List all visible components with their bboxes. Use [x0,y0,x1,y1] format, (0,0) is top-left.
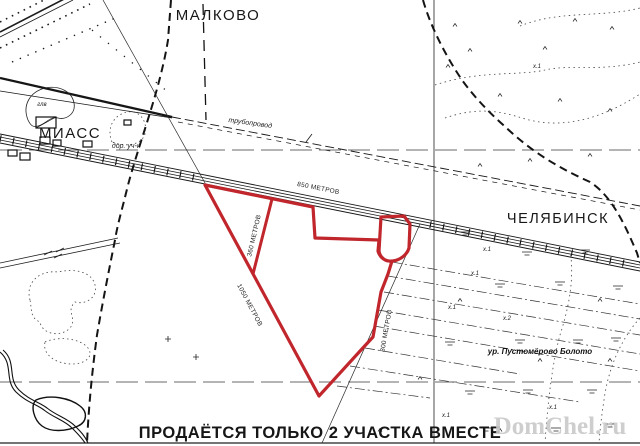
field-mark: х.1 [482,247,491,253]
field-mark: х.1 [548,405,557,411]
field-mark: х.1 [532,64,541,70]
field-mark: х.2 [502,316,512,322]
sale-notice: ПРОДАЁТСЯ ТОЛЬКО 2 УЧАСТКА ВМЕСТЕ [139,424,501,442]
railway-corridor [0,134,640,271]
field-track [0,238,120,268]
parcel-outlines [205,185,410,396]
town-label-chelyabinsk: ЧЕЛЯБИНСК [507,211,609,227]
tree-lined-road [0,0,168,92]
parcel-strip-outline [379,216,410,261]
field-mark: х.1 [441,413,450,419]
field-mark: х.1 [447,305,456,311]
cross-marks [165,336,199,360]
plot-edge-label-right: 800 МЕТРОВ [379,309,393,353]
field-mark: х.1 [470,271,479,277]
forest-mark-label: глв [37,102,46,108]
plot-edge-label-top: 850 МЕТРОВ [297,181,341,196]
topographic-map: трубопровод [0,0,640,446]
watermark: DomChel.ru [494,413,627,440]
survey-lines [103,0,420,443]
river [0,350,88,443]
plot-edge-label-left: 1050 МЕТРОВ [235,283,263,328]
swamp-label: ур. Пустомёрово Болото [487,347,593,356]
town-label-miass: МИАСС [39,125,101,142]
pipeline-label: трубопровод [228,116,273,130]
map-canvas: трубопровод [0,0,640,446]
road-section-label: дор. уч-к [112,142,141,150]
parcel-main-outline [205,185,392,396]
town-label-malkovo: МАЛКОВО [176,7,261,24]
